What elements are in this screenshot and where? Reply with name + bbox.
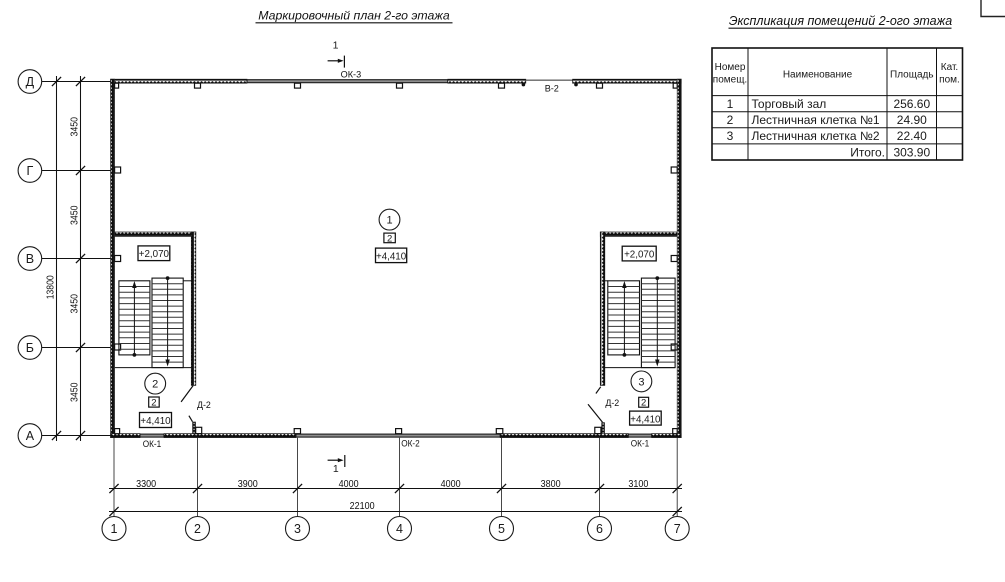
svg-text:4000: 4000 xyxy=(441,479,461,490)
svg-text:3: 3 xyxy=(294,522,301,536)
svg-text:3300: 3300 xyxy=(136,479,156,490)
svg-text:2: 2 xyxy=(151,398,156,409)
svg-text:24.90: 24.90 xyxy=(897,113,927,127)
svg-text:1: 1 xyxy=(727,97,734,111)
svg-text:1: 1 xyxy=(333,463,339,475)
svg-text:Кат.: Кат. xyxy=(941,62,958,73)
svg-text:ОК-2: ОК-2 xyxy=(401,439,420,449)
svg-text:1: 1 xyxy=(386,215,392,227)
svg-text:22.40: 22.40 xyxy=(897,129,927,143)
svg-text:Наименование: Наименование xyxy=(783,69,853,80)
svg-text:+2,070: +2,070 xyxy=(624,250,655,261)
svg-text:2: 2 xyxy=(194,522,201,536)
svg-text:2: 2 xyxy=(152,379,158,391)
svg-text:Маркировочный план 2-го этажа: Маркировочный план 2-го этажа xyxy=(258,9,450,23)
svg-text:3: 3 xyxy=(638,376,644,388)
svg-text:2: 2 xyxy=(387,233,392,244)
svg-text:5: 5 xyxy=(498,522,505,536)
svg-text:Итого.: Итого. xyxy=(850,145,885,159)
svg-text:2: 2 xyxy=(641,398,646,409)
svg-text:+2,070: +2,070 xyxy=(139,249,170,260)
svg-text:3900: 3900 xyxy=(238,479,258,490)
svg-text:А: А xyxy=(26,429,35,443)
svg-text:3800: 3800 xyxy=(541,479,561,490)
svg-text:1: 1 xyxy=(111,522,118,536)
svg-text:3450: 3450 xyxy=(69,117,80,137)
svg-text:Торговый зал: Торговый зал xyxy=(752,97,827,111)
svg-text:3450: 3450 xyxy=(69,382,80,402)
svg-text:ОК-3: ОК-3 xyxy=(341,70,362,80)
svg-text:Б: Б xyxy=(26,341,34,355)
svg-text:3450: 3450 xyxy=(69,205,80,225)
svg-text:Д-2: Д-2 xyxy=(197,400,211,410)
svg-text:256.60: 256.60 xyxy=(893,97,930,111)
svg-text:Лестничная клетка №2: Лестничная клетка №2 xyxy=(752,129,880,143)
svg-text:+4,410: +4,410 xyxy=(630,414,661,425)
svg-text:Д: Д xyxy=(26,75,35,89)
svg-text:Экспликация помещений 2-ого эт: Экспликация помещений 2-ого этажа xyxy=(729,14,952,28)
svg-text:3450: 3450 xyxy=(69,294,80,314)
svg-text:Г: Г xyxy=(27,164,34,178)
svg-text:Площадь: Площадь xyxy=(890,69,934,80)
svg-text:3: 3 xyxy=(727,129,734,143)
svg-text:7: 7 xyxy=(674,522,681,536)
svg-text:4: 4 xyxy=(396,522,403,536)
svg-text:ОК-1: ОК-1 xyxy=(143,439,162,449)
svg-text:помещ.: помещ. xyxy=(713,74,747,85)
svg-text:В: В xyxy=(26,252,34,266)
svg-text:1: 1 xyxy=(333,39,339,51)
svg-text:Лестничная клетка №1: Лестничная клетка №1 xyxy=(752,113,880,127)
svg-text:+4,410: +4,410 xyxy=(376,252,407,263)
svg-text:пом.: пом. xyxy=(939,74,960,85)
svg-text:ОК-1: ОК-1 xyxy=(631,439,650,449)
svg-text:В-2: В-2 xyxy=(545,84,559,94)
svg-text:13800: 13800 xyxy=(46,275,57,299)
svg-text:+4,410: +4,410 xyxy=(140,416,171,427)
svg-text:Номер: Номер xyxy=(715,62,746,73)
svg-text:303.90: 303.90 xyxy=(893,145,930,159)
svg-text:Д-2: Д-2 xyxy=(605,398,619,408)
svg-text:3100: 3100 xyxy=(628,479,648,490)
svg-text:6: 6 xyxy=(596,522,603,536)
svg-text:2: 2 xyxy=(727,113,734,127)
svg-text:22100: 22100 xyxy=(350,501,375,512)
svg-text:4000: 4000 xyxy=(339,479,359,490)
